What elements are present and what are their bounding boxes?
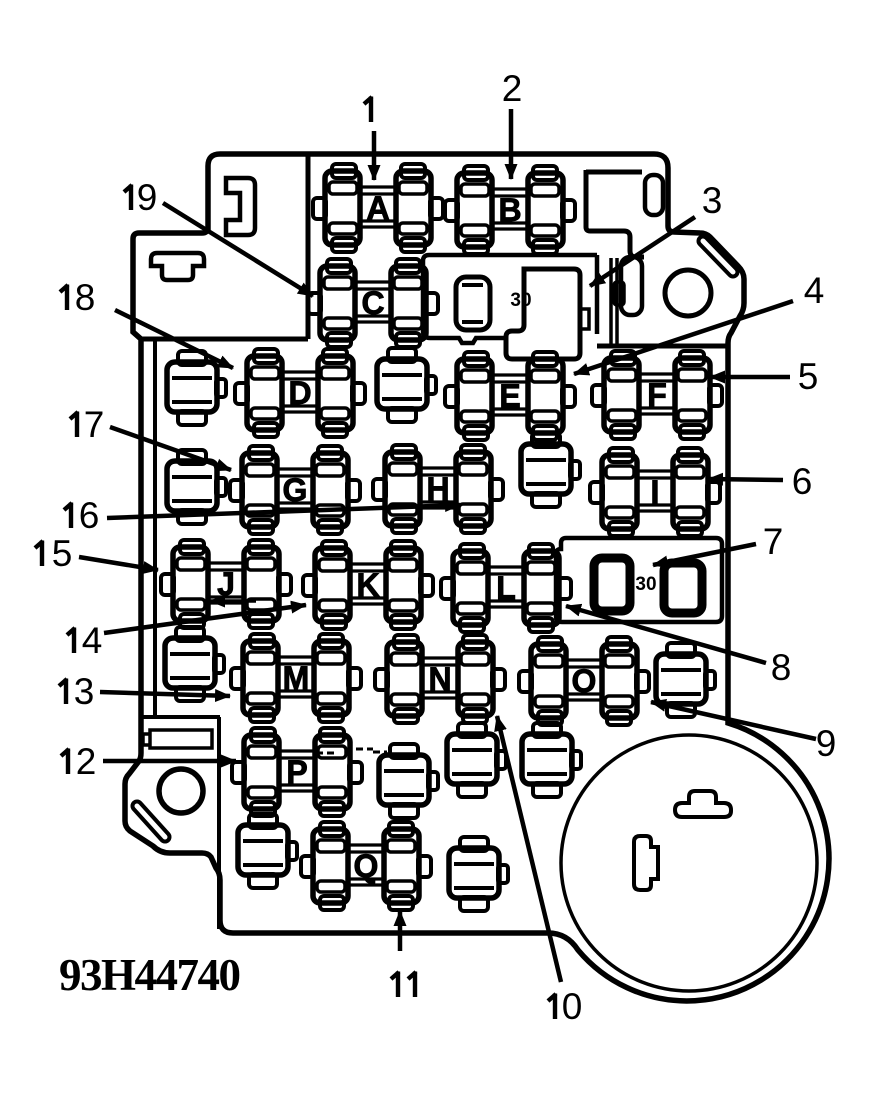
- svg-text:O: O: [572, 663, 597, 699]
- svg-text:B: B: [498, 192, 521, 228]
- svg-text:8: 8: [771, 647, 792, 688]
- svg-text:5: 5: [798, 356, 819, 397]
- svg-text:93H44740: 93H44740: [59, 950, 240, 1000]
- svg-text:F: F: [647, 377, 667, 413]
- svg-text:D: D: [288, 375, 311, 411]
- svg-text:K: K: [356, 567, 379, 603]
- svg-text:0: 0: [562, 986, 583, 1027]
- svg-text:2: 2: [502, 68, 523, 109]
- svg-text:N: N: [428, 661, 451, 697]
- svg-text:L: L: [496, 570, 516, 606]
- svg-text:4: 4: [82, 620, 103, 661]
- svg-text:3: 3: [702, 180, 723, 221]
- svg-text:6: 6: [79, 495, 100, 536]
- svg-text:9: 9: [137, 177, 158, 218]
- svg-text:3: 3: [74, 671, 95, 712]
- svg-text:I: I: [651, 474, 660, 510]
- svg-text:H: H: [426, 471, 449, 507]
- svg-text:30: 30: [510, 290, 531, 311]
- svg-text:A: A: [366, 190, 389, 226]
- svg-text:J: J: [217, 566, 235, 602]
- svg-text:4: 4: [804, 270, 825, 311]
- svg-text:9: 9: [816, 723, 837, 764]
- svg-text:G: G: [283, 472, 308, 508]
- svg-text:C: C: [361, 285, 384, 321]
- svg-text:7: 7: [84, 404, 105, 445]
- svg-text:8: 8: [75, 277, 96, 318]
- svg-text:P: P: [286, 754, 307, 790]
- svg-text:E: E: [499, 378, 520, 414]
- svg-text:6: 6: [792, 461, 813, 502]
- svg-text:2: 2: [76, 741, 97, 782]
- svg-text:M: M: [283, 660, 310, 696]
- svg-text:30: 30: [635, 574, 656, 595]
- svg-text:7: 7: [763, 521, 784, 562]
- svg-text:5: 5: [52, 533, 73, 574]
- svg-text:Q: Q: [354, 848, 379, 884]
